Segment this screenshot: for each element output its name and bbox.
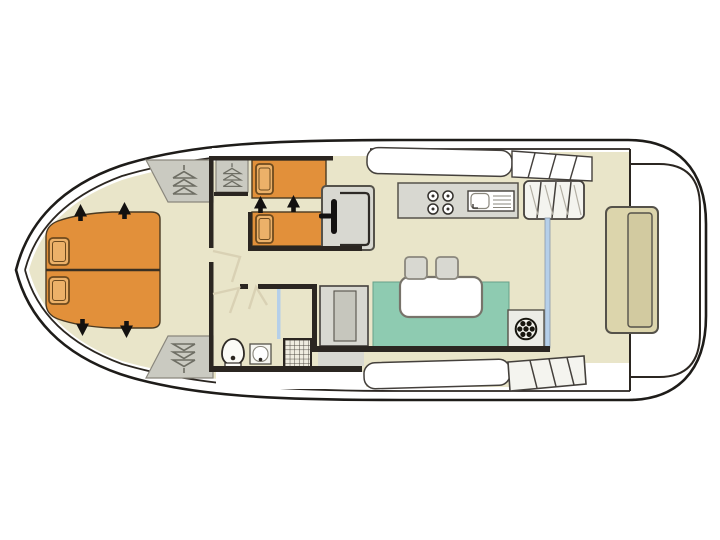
wall-top	[209, 156, 333, 161]
wall-bow-upper	[209, 156, 214, 248]
transom-bench-backrest	[628, 213, 652, 327]
wall-twin-stub	[248, 212, 252, 250]
wall-bath-right	[312, 284, 317, 348]
walkway-bottom	[364, 359, 511, 389]
pillow	[49, 238, 69, 265]
toilet	[222, 339, 244, 368]
wall-bath-top	[258, 284, 317, 289]
side-deck-strip-bottom	[216, 372, 366, 389]
stool-left	[405, 257, 427, 279]
shower-screen	[277, 289, 281, 339]
pillow	[49, 277, 69, 304]
wall-bath-bottom	[209, 366, 362, 372]
sink-bowl	[471, 194, 489, 209]
shower-tray	[284, 339, 311, 367]
walkway-top	[367, 147, 513, 176]
wall-saloon-bottom	[312, 346, 550, 352]
stairs-bottom	[508, 356, 586, 391]
sliding-door-glass	[545, 218, 550, 348]
boat-floor-plan-canvas	[0, 0, 720, 540]
galley	[398, 183, 518, 218]
dinette-table	[400, 277, 482, 317]
stool-right	[436, 257, 458, 279]
washbasin	[250, 344, 271, 364]
pillow	[256, 164, 273, 194]
helm-wheel-icon	[516, 319, 537, 340]
sideboard-cabinet-inner	[334, 291, 356, 341]
wall-bath-stub	[240, 284, 248, 289]
wall-wardrobe	[214, 192, 248, 196]
steering-column	[319, 214, 332, 219]
pillow	[256, 215, 273, 243]
cabinet-base	[318, 352, 364, 366]
side-deck-strip-top	[212, 148, 370, 156]
boat-floor-plan	[0, 0, 720, 540]
wall-bow-lower	[209, 262, 214, 372]
wall-twin-cabin	[248, 246, 362, 251]
helm-station	[319, 186, 374, 250]
